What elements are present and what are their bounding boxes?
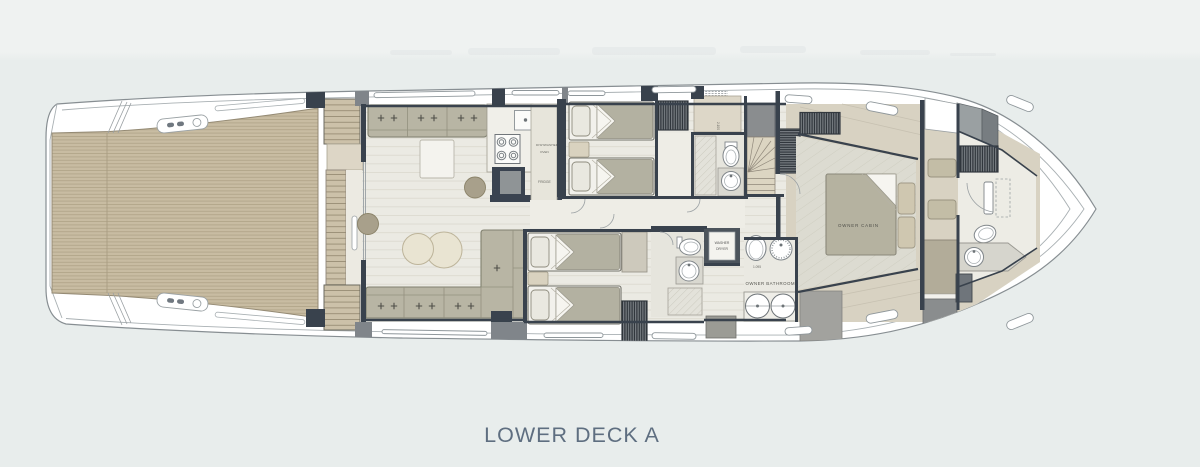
svg-text:DISHWASHER: DISHWASHER [536, 143, 559, 147]
svg-text:OVEN: OVEN [540, 150, 549, 154]
svg-text:OWNER BATHROOM: OWNER BATHROOM [746, 281, 795, 286]
svg-text:WASHER: WASHER [715, 241, 730, 245]
svg-text:1.095: 1.095 [753, 265, 761, 269]
svg-text:LOWER DECK A: LOWER DECK A [484, 423, 660, 447]
svg-text:2.100: 2.100 [716, 122, 720, 130]
svg-text:FRIDGE: FRIDGE [538, 180, 552, 184]
svg-text:DRYER: DRYER [716, 247, 728, 251]
svg-text:OWNER CABIN: OWNER CABIN [838, 223, 878, 228]
